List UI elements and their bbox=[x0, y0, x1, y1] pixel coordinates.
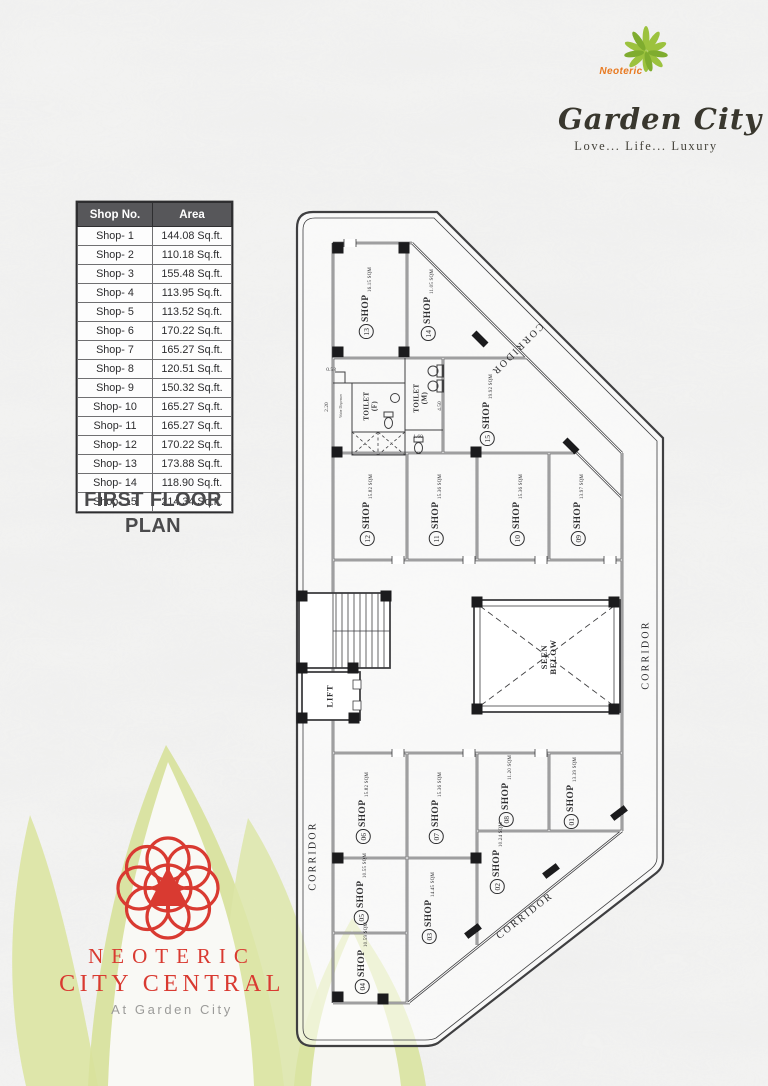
table-row: Shop- 7165.27 Sq.ft. bbox=[78, 341, 232, 360]
table-cell: 165.27 Sq.ft. bbox=[153, 398, 232, 417]
table-cell: 120.51 Sq.ft. bbox=[153, 360, 232, 379]
page-title: FIRST FLOOR PLAN bbox=[58, 487, 248, 539]
footer-line1: NEOTERIC bbox=[48, 944, 296, 969]
table-row: Shop- 8120.51 Sq.ft. bbox=[78, 360, 232, 379]
table-row: Shop- 5113.52 Sq.ft. bbox=[78, 303, 232, 322]
table-row: Shop- 9150.32 Sq.ft. bbox=[78, 379, 232, 398]
table-cell: Shop- 10 bbox=[78, 398, 153, 417]
table-cell: 173.88 Sq.ft. bbox=[153, 455, 232, 474]
table-cell: 170.22 Sq.ft. bbox=[153, 436, 232, 455]
table-cell: 155.48 Sq.ft. bbox=[153, 265, 232, 284]
footer-line2: CITY CENTRAL bbox=[48, 971, 296, 998]
table-cell: Shop- 12 bbox=[78, 436, 153, 455]
footer-tagline: At Garden City bbox=[48, 1002, 296, 1017]
floor-plan-drawing bbox=[283, 198, 680, 1068]
table-cell: Shop- 13 bbox=[78, 455, 153, 474]
city-central-emblem bbox=[106, 826, 230, 950]
table-cell: 113.52 Sq.ft. bbox=[153, 303, 232, 322]
table-cell: 110.18 Sq.ft. bbox=[153, 246, 232, 265]
table-cell: Shop- 5 bbox=[78, 303, 153, 322]
table-cell: 165.27 Sq.ft. bbox=[153, 341, 232, 360]
city-central-logo: NEOTERIC CITY CENTRAL At Garden City bbox=[48, 944, 296, 1017]
table-cell: Shop- 2 bbox=[78, 246, 153, 265]
table-cell: Shop- 9 bbox=[78, 379, 153, 398]
shop-area-table: Shop No. Area Shop- 1144.08 Sq.ft.Shop- … bbox=[77, 202, 232, 512]
table-cell: Shop- 3 bbox=[78, 265, 153, 284]
table-row: Shop- 3155.48 Sq.ft. bbox=[78, 265, 232, 284]
table-cell: Shop- 8 bbox=[78, 360, 153, 379]
brand-tagline: Love... Life... Luxury bbox=[558, 139, 734, 154]
col-area: Area bbox=[153, 203, 232, 227]
table-row: Shop- 6170.22 Sq.ft. bbox=[78, 322, 232, 341]
col-shop-no: Shop No. bbox=[78, 203, 153, 227]
table-cell: Shop- 11 bbox=[78, 417, 153, 436]
table-cell: Shop- 4 bbox=[78, 284, 153, 303]
table-cell: 144.08 Sq.ft. bbox=[153, 227, 232, 246]
table-cell: Shop- 6 bbox=[78, 322, 153, 341]
table-row: Shop- 13173.88 Sq.ft. bbox=[78, 455, 232, 474]
table-row: Shop- 2110.18 Sq.ft. bbox=[78, 246, 232, 265]
table-row: Shop- 12170.22 Sq.ft. bbox=[78, 436, 232, 455]
table-cell: 113.95 Sq.ft. bbox=[153, 284, 232, 303]
table-row: Shop- 1144.08 Sq.ft. bbox=[78, 227, 232, 246]
table-cell: 165.27 Sq.ft. bbox=[153, 417, 232, 436]
brochure-page: Neoteric Garden City Love... Life... Lux… bbox=[0, 0, 768, 1086]
shop-area-table-body: Shop- 1144.08 Sq.ft.Shop- 2110.18 Sq.ft.… bbox=[78, 227, 232, 512]
table-row: Shop- 10165.27 Sq.ft. bbox=[78, 398, 232, 417]
seen-below-void bbox=[474, 600, 620, 712]
table-row: Shop- 11165.27 Sq.ft. bbox=[78, 417, 232, 436]
garden-city-logo: Neoteric Garden City Love... Life... Lux… bbox=[558, 22, 734, 154]
table-row: Shop- 4113.95 Sq.ft. bbox=[78, 284, 232, 303]
table-cell: Shop- 7 bbox=[78, 341, 153, 360]
stairs bbox=[299, 593, 390, 668]
brand-neoteric: Neoteric bbox=[586, 66, 656, 77]
table-cell: 170.22 Sq.ft. bbox=[153, 322, 232, 341]
table-cell: Shop- 1 bbox=[78, 227, 153, 246]
table-cell: 150.32 Sq.ft. bbox=[153, 379, 232, 398]
brand-garden-city: Garden City bbox=[558, 102, 734, 136]
